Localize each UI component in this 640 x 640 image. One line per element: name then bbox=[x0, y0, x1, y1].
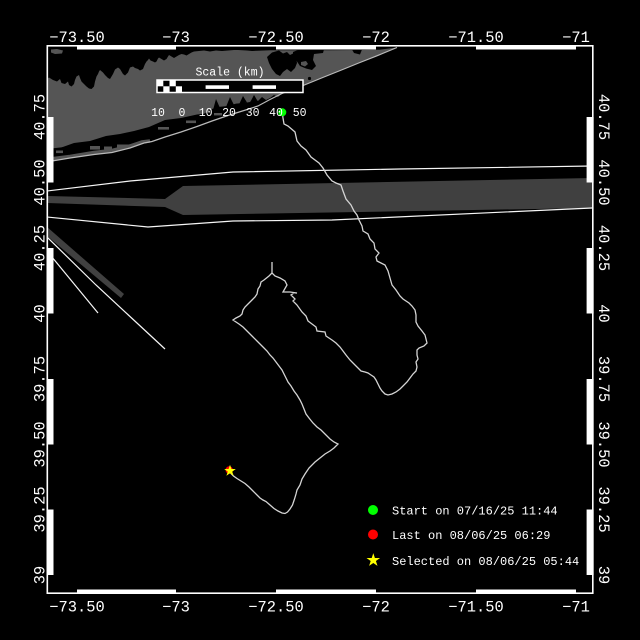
svg-text:−71: −71 bbox=[562, 599, 590, 617]
svg-text:40.50: 40.50 bbox=[594, 159, 612, 205]
svg-text:−73: −73 bbox=[162, 29, 190, 47]
svg-text:Last on 08/06/25 06:29: Last on 08/06/25 06:29 bbox=[392, 529, 550, 543]
svg-text:39.75: 39.75 bbox=[31, 356, 49, 402]
svg-text:−72.50: −72.50 bbox=[248, 599, 303, 617]
svg-text:39.50: 39.50 bbox=[31, 421, 49, 467]
svg-text:40.75: 40.75 bbox=[31, 94, 49, 140]
svg-text:40.25: 40.25 bbox=[31, 225, 49, 271]
svg-text:20: 20 bbox=[222, 107, 236, 120]
svg-text:−71.50: −71.50 bbox=[448, 599, 503, 617]
svg-text:50: 50 bbox=[293, 107, 307, 120]
svg-text:40: 40 bbox=[269, 107, 283, 120]
svg-text:−71: −71 bbox=[562, 29, 590, 47]
svg-text:39.25: 39.25 bbox=[31, 486, 49, 532]
svg-text:−72: −72 bbox=[362, 29, 390, 47]
svg-text:39.25: 39.25 bbox=[594, 486, 612, 532]
svg-text:39.50: 39.50 bbox=[594, 421, 612, 467]
svg-text:40.25: 40.25 bbox=[594, 225, 612, 271]
svg-text:−73: −73 bbox=[162, 599, 190, 617]
svg-text:−73.50: −73.50 bbox=[49, 29, 104, 47]
svg-text:−72.50: −72.50 bbox=[248, 29, 303, 47]
svg-text:39: 39 bbox=[31, 566, 49, 584]
svg-text:Selected on 08/06/25 05:44: Selected on 08/06/25 05:44 bbox=[392, 555, 579, 569]
svg-text:30: 30 bbox=[246, 107, 260, 120]
svg-text:−72: −72 bbox=[362, 599, 390, 617]
svg-text:Scale (km): Scale (km) bbox=[195, 67, 264, 80]
svg-text:10: 10 bbox=[199, 107, 213, 120]
svg-text:39: 39 bbox=[594, 566, 612, 584]
svg-text:40: 40 bbox=[31, 304, 49, 322]
svg-text:0: 0 bbox=[179, 107, 186, 120]
svg-text:39.75: 39.75 bbox=[594, 356, 612, 402]
svg-text:−71.50: −71.50 bbox=[448, 29, 503, 47]
svg-text:40: 40 bbox=[594, 304, 612, 322]
svg-text:Start on 07/16/25 11:44: Start on 07/16/25 11:44 bbox=[392, 505, 558, 519]
svg-text:−73.50: −73.50 bbox=[49, 599, 104, 617]
svg-text:40.50: 40.50 bbox=[31, 159, 49, 205]
svg-text:10: 10 bbox=[151, 107, 165, 120]
svg-text:40.75: 40.75 bbox=[594, 94, 612, 140]
